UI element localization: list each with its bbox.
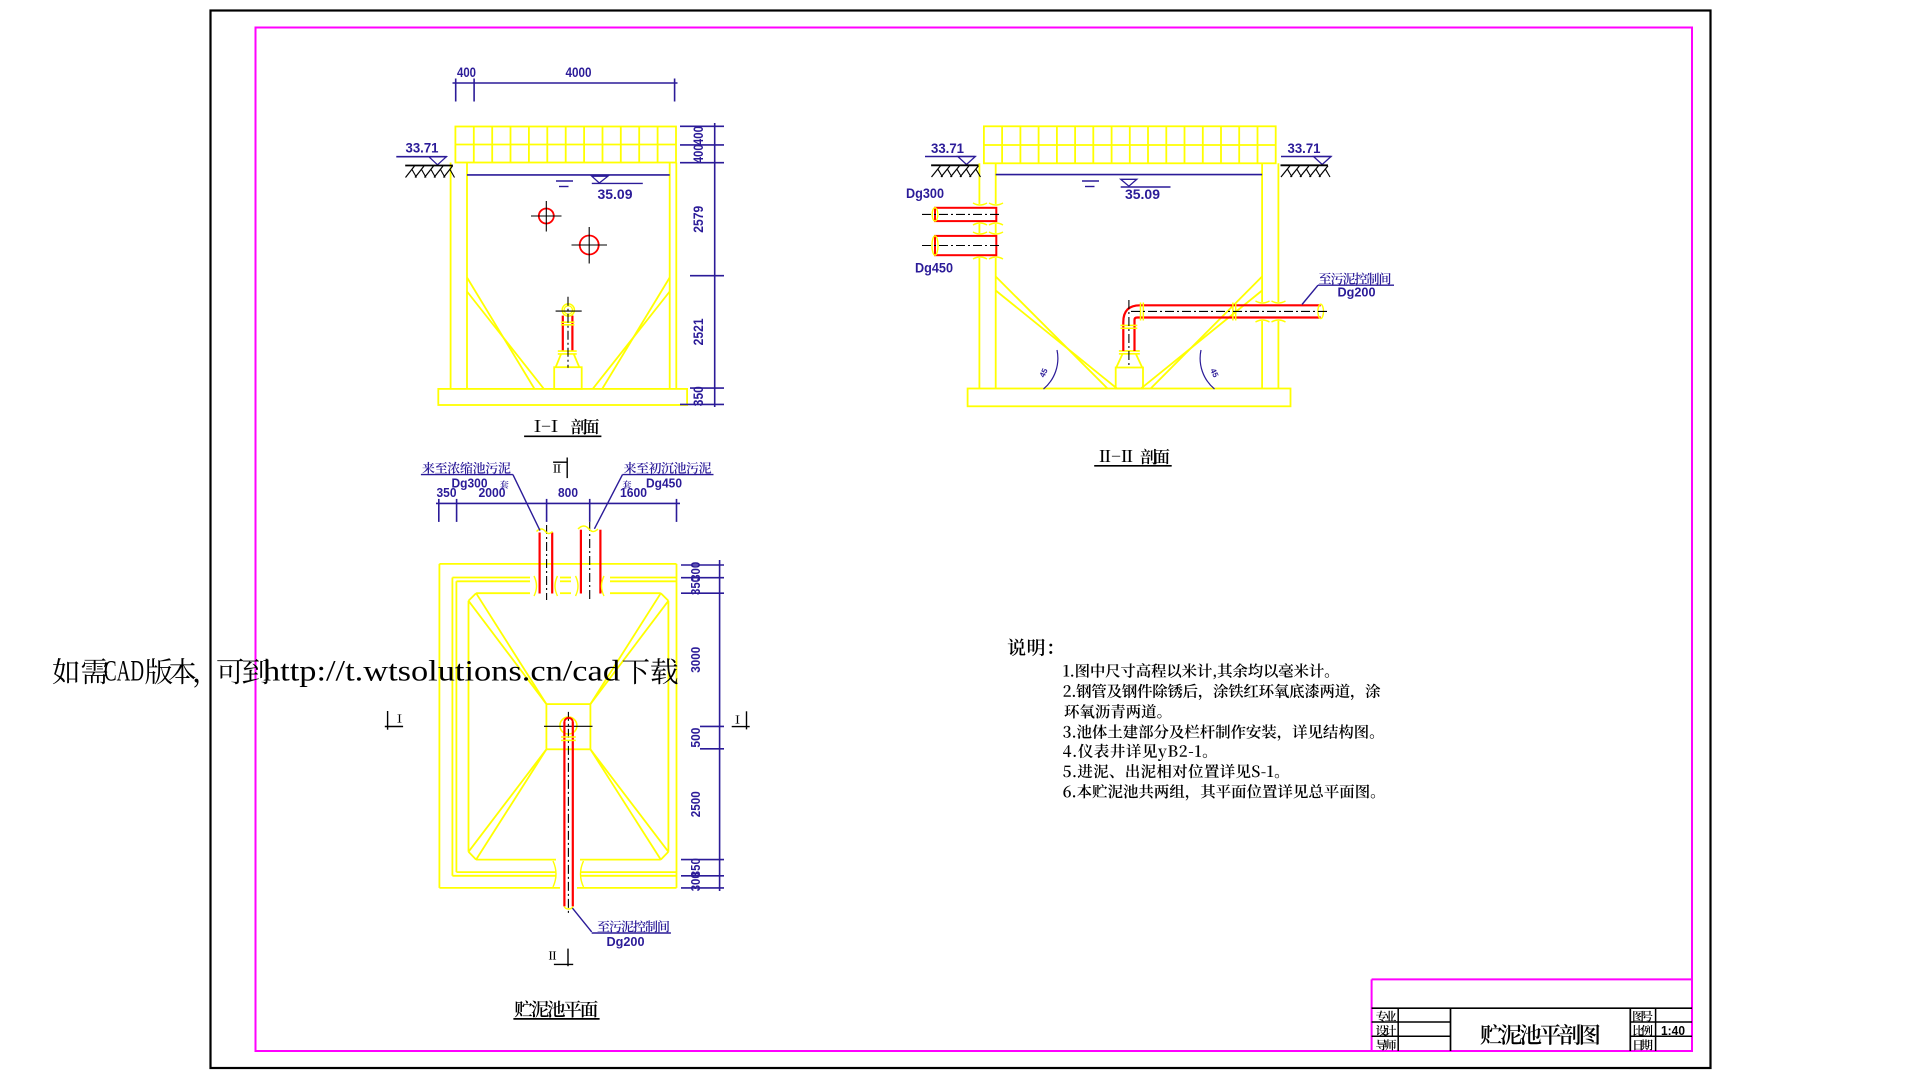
svg-text:http://t.wtsolutions.cn/cad: http://t.wtsolutions.cn/cad [263,656,620,688]
svg-text:Dg450: Dg450 [646,476,682,490]
svg-text:Dg300: Dg300 [906,186,944,201]
svg-text:800: 800 [558,485,578,500]
svg-text:33.71: 33.71 [406,141,439,156]
svg-text:2579: 2579 [691,206,706,233]
svg-text:400: 400 [457,65,476,80]
svg-text:35.09: 35.09 [598,187,633,202]
svg-text:3000: 3000 [688,647,703,673]
svg-text:CAD: CAD [104,656,144,688]
svg-text:350: 350 [688,576,703,595]
svg-text:35.09: 35.09 [1125,187,1160,202]
svg-text:33.71: 33.71 [931,141,964,156]
svg-text:4000: 4000 [566,65,592,80]
svg-text:33.71: 33.71 [1288,141,1321,156]
svg-text:500: 500 [688,728,703,748]
svg-text:350: 350 [691,386,706,406]
svg-text:Dg200: Dg200 [607,935,645,949]
svg-text:Dg200: Dg200 [1338,286,1376,300]
svg-text:45: 45 [1208,367,1220,379]
svg-text:2500: 2500 [688,791,703,817]
svg-text:2521: 2521 [691,318,706,345]
svg-text:1600: 1600 [620,485,647,500]
svg-text:400: 400 [691,144,706,163]
svg-text:Dg450: Dg450 [915,261,953,276]
svg-text:45: 45 [1038,367,1050,379]
svg-text:400: 400 [691,126,706,145]
svg-text:300: 300 [688,872,703,891]
svg-text:Dg300: Dg300 [452,476,488,490]
svg-text:1:40: 1:40 [1661,1023,1685,1038]
